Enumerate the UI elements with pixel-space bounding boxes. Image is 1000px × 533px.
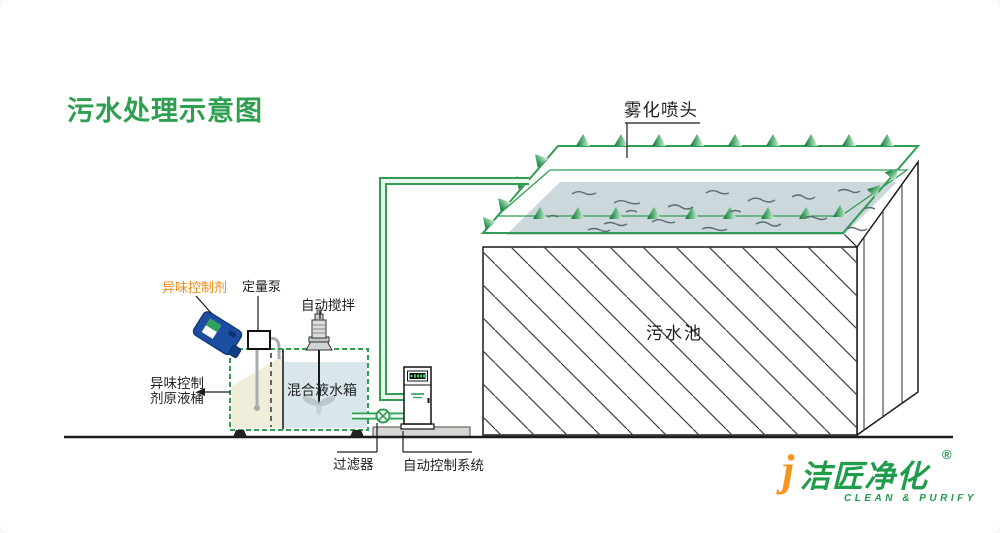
label-spray-nozzle: 雾化喷头	[624, 100, 698, 120]
logo-row: j 洁匠净化 ®	[782, 449, 982, 495]
logo-name: 洁匠净化	[800, 451, 928, 496]
schematic-page: 污水处理示意图 雾化喷头 污水池 异味控制剂 定量泵 自动搅拌 异味控制 剂原液…	[0, 0, 1000, 533]
cabinet-handle	[428, 398, 430, 403]
control-cabinet	[401, 367, 434, 429]
filter-valve	[377, 410, 390, 423]
label-sewage-pool: 污水池	[646, 324, 703, 344]
logo-registered: ®	[942, 447, 952, 462]
label-metering-pump: 定量泵	[242, 280, 281, 295]
pump-suction-strainer	[254, 405, 260, 411]
label-mixing-tank: 混合液水箱	[287, 382, 357, 398]
label-agent-barrel: 异味控制 剂原液桶	[150, 376, 204, 406]
logo-tagline: CLEAN & PURIFY	[844, 493, 977, 504]
label-auto-control: 自动控制系统	[403, 458, 484, 474]
label-filter: 过滤器	[333, 457, 374, 473]
label-auto-stir: 自动搅拌	[301, 298, 355, 314]
leader-odor-agent	[196, 296, 212, 314]
logo-j-mark: j	[782, 445, 794, 496]
label-odor-agent: 异味控制剂	[162, 281, 227, 296]
nozzle-row-back	[576, 134, 894, 146]
cabinet-display-dot	[411, 375, 413, 377]
pool-rim-corner-line	[843, 233, 857, 247]
page-title: 污水处理示意图	[67, 96, 263, 127]
brand-logo: j 洁匠净化 ® CLEAN & PURIFY	[782, 449, 982, 519]
stirrer-motor	[306, 310, 332, 350]
metering-pump-box	[248, 331, 270, 349]
sewage-pool	[478, 134, 918, 435]
